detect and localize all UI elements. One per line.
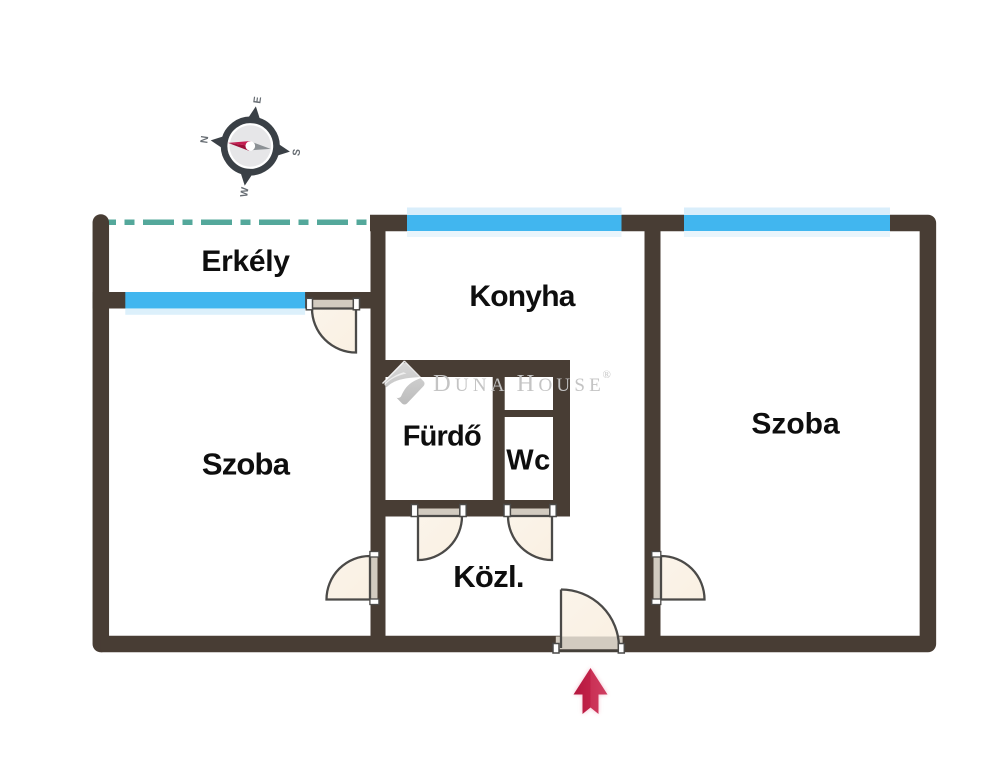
svg-text:Szoba: Szoba xyxy=(202,447,291,482)
svg-text:Közl.: Közl. xyxy=(453,559,524,594)
svg-text:®: ® xyxy=(603,369,611,381)
svg-text:Erkély: Erkély xyxy=(201,245,290,278)
svg-text:S: S xyxy=(290,148,303,157)
svg-text:Konyha: Konyha xyxy=(469,280,575,313)
svg-text:DUNA HOUSE: DUNA HOUSE xyxy=(433,370,605,397)
svg-text:E: E xyxy=(251,96,264,105)
svg-text:W: W xyxy=(238,186,251,198)
svg-text:Szoba: Szoba xyxy=(751,408,840,441)
svg-text:Fürdő: Fürdő xyxy=(403,420,481,452)
svg-text:N: N xyxy=(198,135,211,144)
svg-text:Wc: Wc xyxy=(506,445,551,477)
